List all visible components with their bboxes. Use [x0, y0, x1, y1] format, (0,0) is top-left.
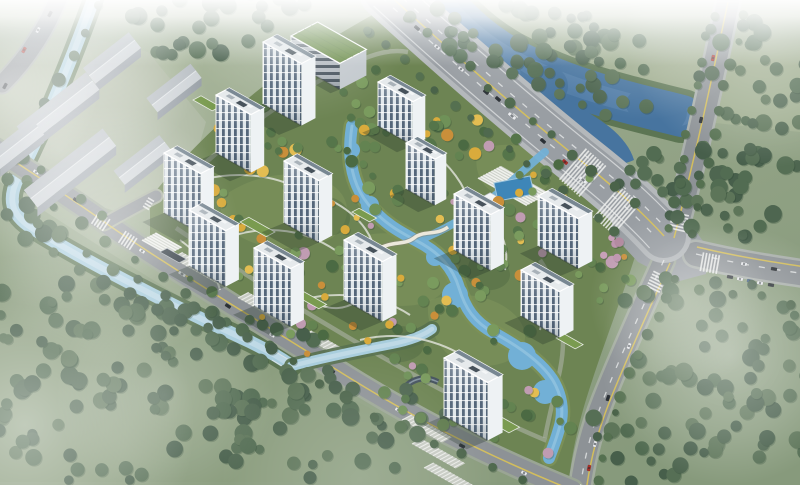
aerial-masterplan-rendering: [0, 0, 800, 485]
rendering-canvas: [0, 0, 800, 485]
